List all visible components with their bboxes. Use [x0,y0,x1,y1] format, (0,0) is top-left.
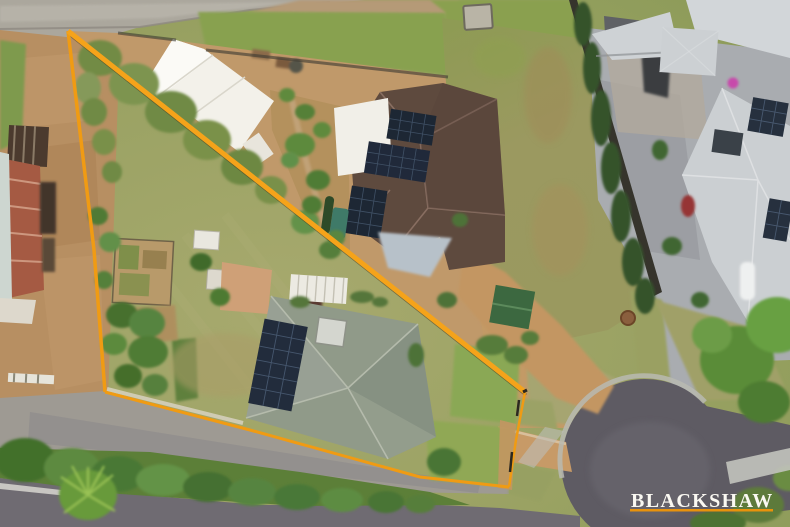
svg-text:BLACKSHAW: BLACKSHAW [631,490,774,512]
